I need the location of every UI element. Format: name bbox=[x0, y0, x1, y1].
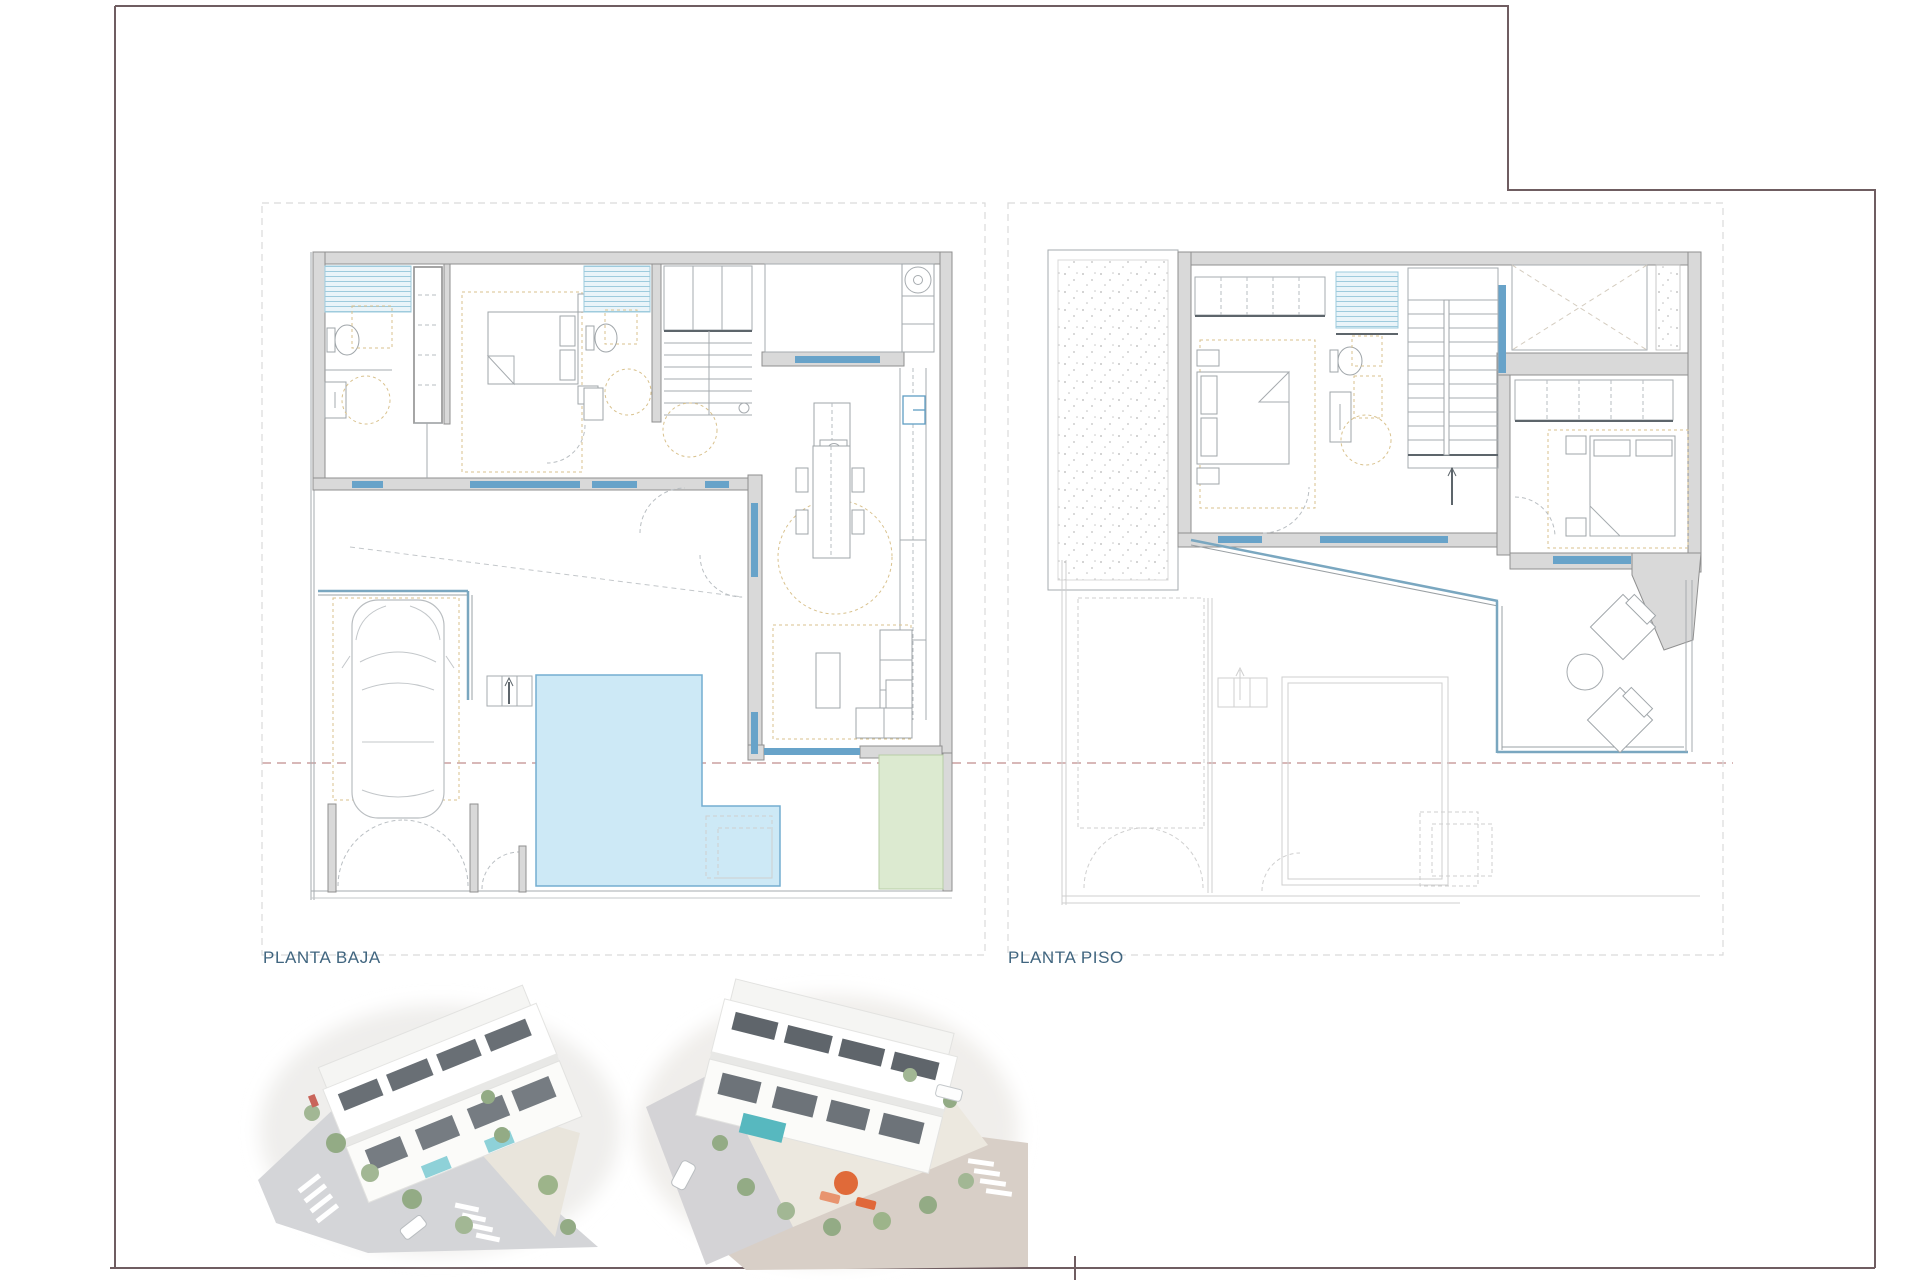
bathroom-1 bbox=[325, 266, 411, 424]
bathroom-3 bbox=[1330, 272, 1398, 465]
floor-plan-planta-baja bbox=[262, 203, 985, 955]
void-cross bbox=[1512, 265, 1680, 350]
carport bbox=[318, 591, 532, 818]
toilet-2-icon bbox=[595, 324, 617, 352]
wardrobe-2 bbox=[1195, 277, 1325, 315]
planta-piso-label: PLANTA PISO bbox=[1008, 948, 1124, 968]
nightstand bbox=[1197, 350, 1219, 366]
floor-plan-planta-piso bbox=[1008, 203, 1723, 955]
laundry-patio bbox=[765, 264, 934, 352]
nightstand bbox=[1566, 436, 1586, 454]
lawn-patch bbox=[879, 755, 943, 889]
shower-1 bbox=[325, 266, 411, 312]
solarium bbox=[1048, 250, 1178, 590]
entrance-hall bbox=[350, 403, 743, 597]
toilet-3-tank bbox=[1330, 350, 1338, 372]
toilet-1-icon bbox=[335, 325, 359, 355]
nightstand bbox=[1197, 468, 1219, 484]
parasol-orange bbox=[834, 1171, 858, 1195]
lounge-chair bbox=[1587, 682, 1658, 753]
shower-3 bbox=[1336, 272, 1398, 328]
toilet-1-tank bbox=[327, 328, 335, 352]
terrace-table bbox=[1567, 654, 1603, 690]
car-top-view-icon bbox=[342, 600, 454, 818]
staircase-ground bbox=[664, 266, 752, 415]
bedroom-3 bbox=[1515, 380, 1688, 548]
swimming-pool bbox=[536, 675, 780, 886]
bedroom-1 bbox=[462, 292, 598, 472]
nightstand bbox=[1566, 518, 1586, 536]
bedroom-2 bbox=[1195, 277, 1325, 533]
plan-sheet-page: PLANTA BAJA PLANTA PISO bbox=[0, 0, 1920, 1280]
shower-2 bbox=[584, 266, 650, 312]
coffee-table bbox=[816, 653, 840, 708]
sink-2-icon bbox=[584, 388, 603, 420]
entry-gates bbox=[328, 804, 526, 892]
wardrobe-3 bbox=[1515, 380, 1673, 420]
staircase-upper bbox=[1408, 268, 1498, 505]
dining-area bbox=[778, 446, 892, 614]
sheet-drawing bbox=[0, 0, 1920, 1280]
bathroom-2 bbox=[584, 266, 651, 420]
living-area bbox=[773, 625, 912, 739]
wardrobe-1 bbox=[414, 267, 442, 478]
render-aerial-view-2 bbox=[638, 977, 1028, 1270]
toilet-3-icon bbox=[1338, 347, 1362, 375]
entry-step bbox=[487, 676, 532, 706]
render-aerial-view-1 bbox=[258, 983, 620, 1255]
shaft bbox=[1656, 265, 1680, 350]
planta-baja-label: PLANTA BAJA bbox=[263, 948, 381, 968]
toilet-2-tank bbox=[586, 326, 594, 350]
